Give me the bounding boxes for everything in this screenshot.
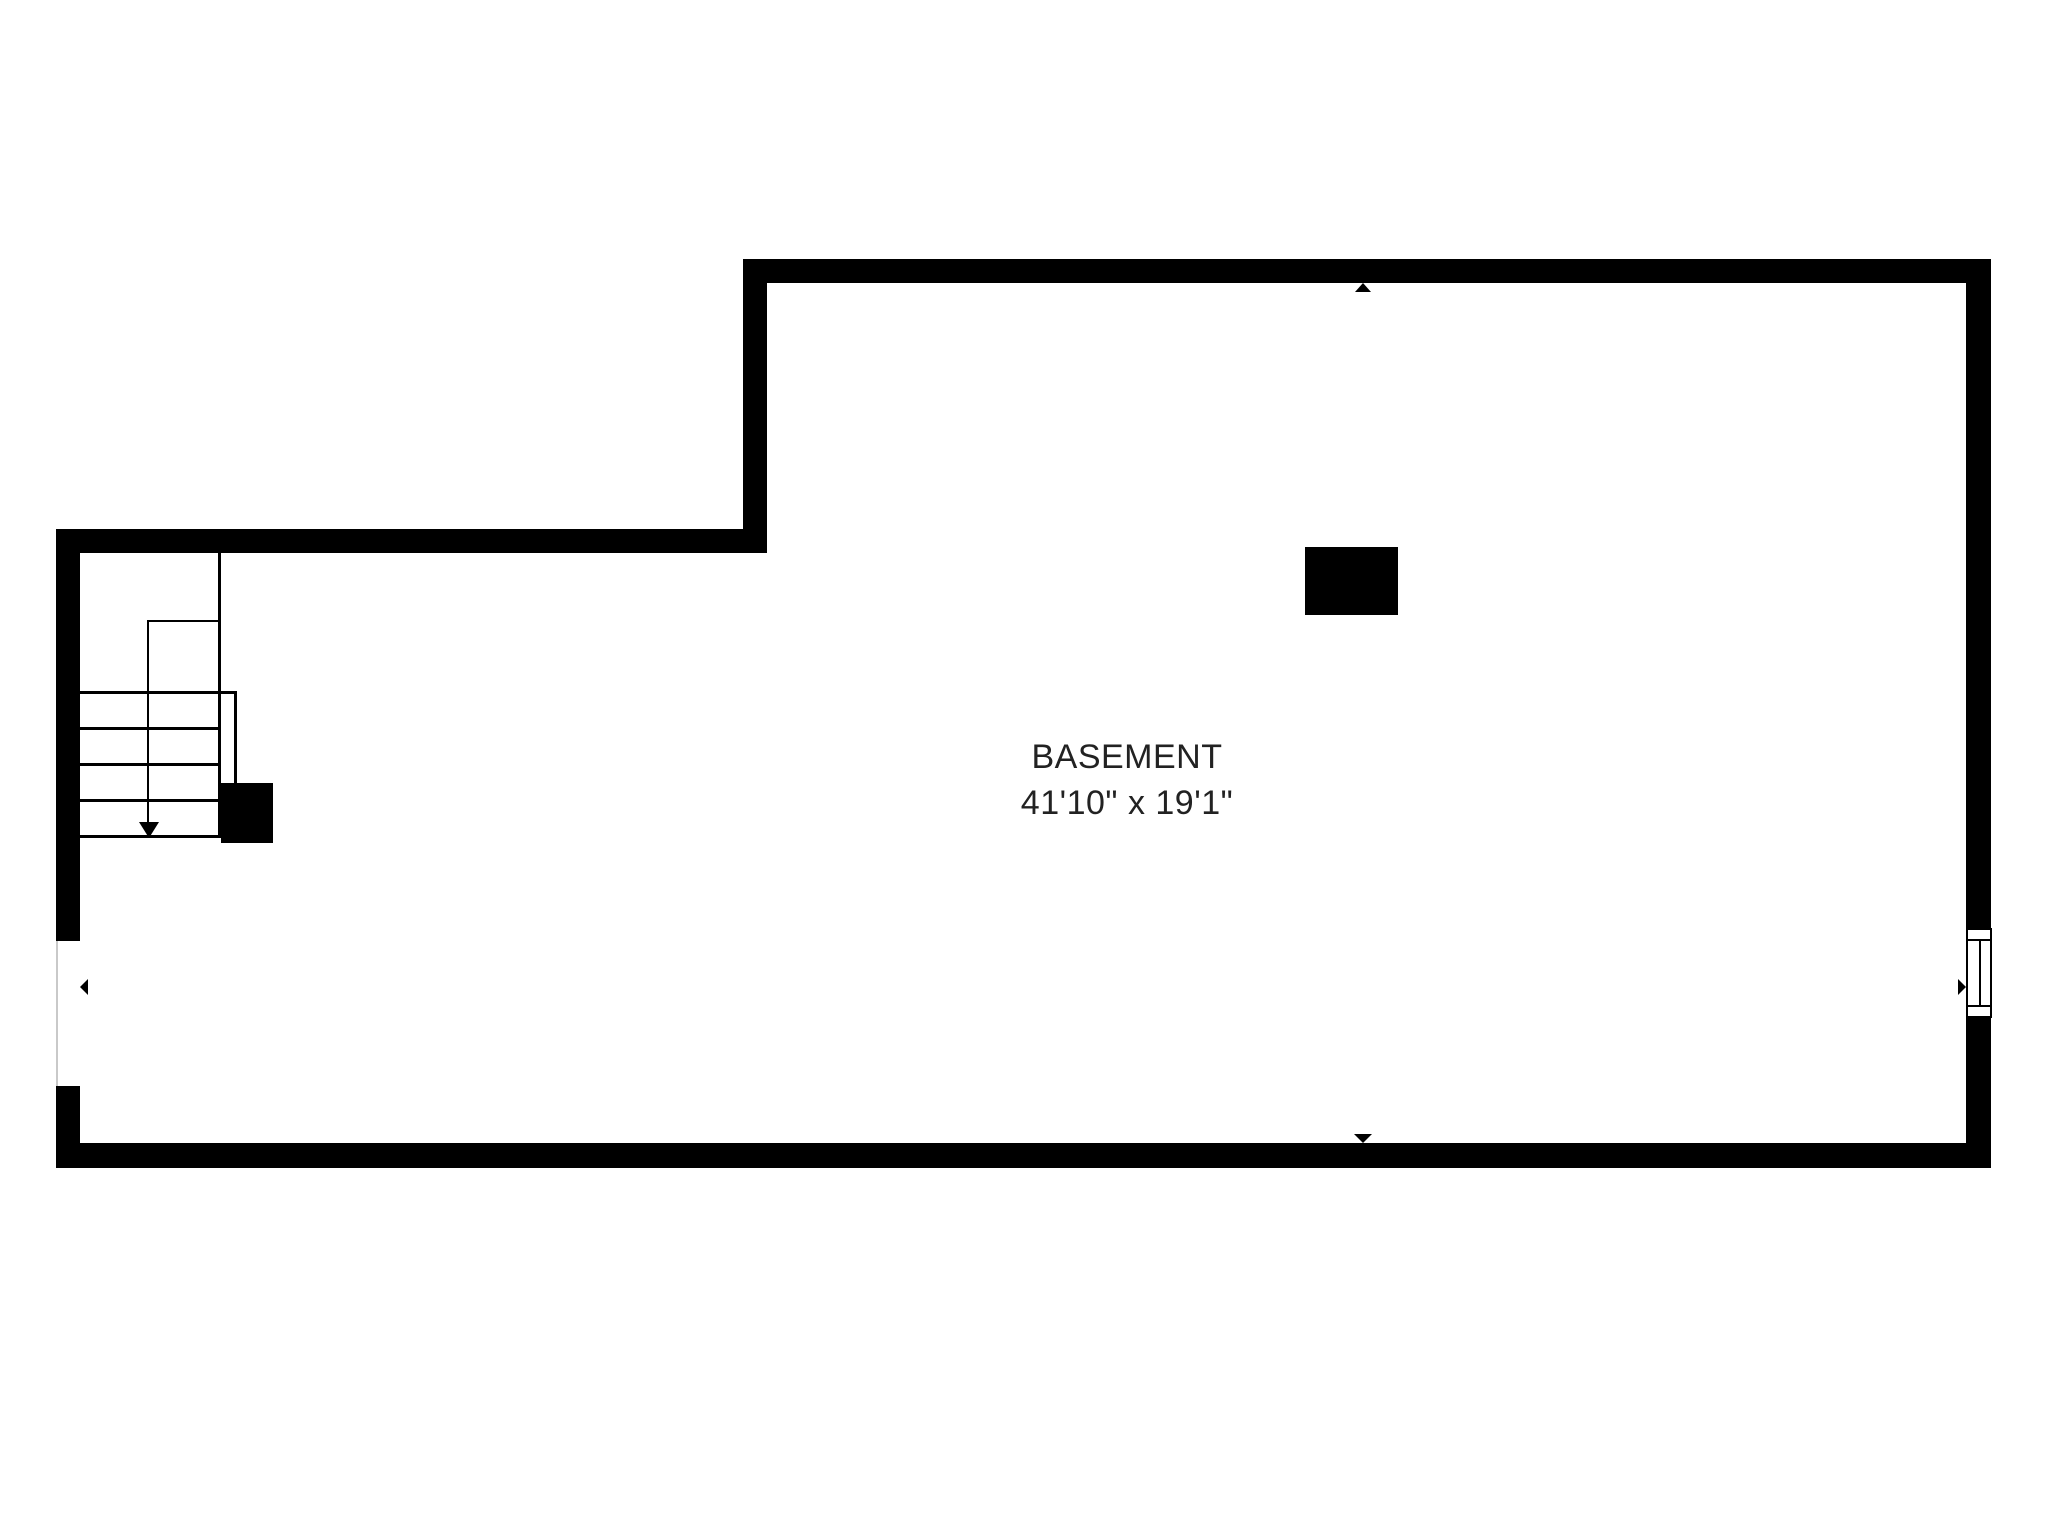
wall-right-lower — [1966, 1018, 1991, 1168]
window — [1966, 928, 1992, 1018]
stair-walkline-vertical — [147, 620, 149, 822]
wall-left-upper — [56, 529, 80, 941]
stair-down-arrow-icon — [139, 822, 159, 838]
newel-post — [221, 783, 273, 843]
wall-top-left — [56, 529, 767, 553]
wall-step-vertical — [743, 259, 767, 553]
wall-marker-right-icon — [1958, 979, 1966, 995]
wall-top — [743, 259, 1991, 283]
room-label: BASEMENT 41'10" x 19'1" — [927, 734, 1327, 826]
door-opening-edge-line — [56, 941, 58, 1086]
wall-marker-left-icon — [80, 979, 88, 995]
stair-tread — [80, 799, 221, 802]
floor-plan-canvas: BASEMENT 41'10" x 19'1" — [0, 0, 2048, 1536]
window-rail-bottom — [1968, 1005, 1990, 1007]
wall-marker-down-icon — [1354, 1134, 1372, 1143]
stair-handrail-line — [234, 691, 237, 783]
wall-marker-up-icon — [1355, 283, 1371, 292]
stair-tread — [80, 727, 221, 730]
wall-bottom — [56, 1143, 1991, 1168]
window-mullion — [1979, 941, 1981, 1005]
stair-tread — [80, 763, 221, 766]
support-column — [1305, 547, 1398, 615]
stair-walkline-horizontal — [147, 620, 221, 622]
stair-tread — [80, 691, 237, 694]
wall-right-upper — [1966, 259, 1991, 928]
room-name: BASEMENT — [927, 734, 1327, 780]
room-dimensions: 41'10" x 19'1" — [927, 780, 1327, 826]
